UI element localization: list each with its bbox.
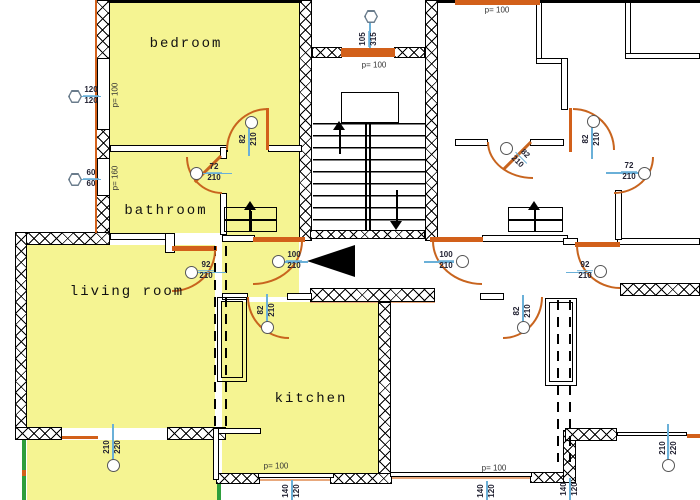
outline-box (224, 207, 277, 232)
wall-thin (110, 233, 168, 240)
dimension-text: 140 (282, 484, 291, 497)
wall-hatched (312, 47, 342, 58)
dimension-text: 120 (84, 86, 97, 95)
wall-hatched (15, 232, 110, 245)
window-hex-inner (70, 175, 81, 185)
dimension-circle (594, 265, 607, 278)
dimension-circle (185, 266, 198, 279)
dimension-circle (587, 115, 600, 128)
dimension-label: 6060 (83, 169, 99, 189)
dimension-circle (500, 142, 513, 155)
dimension-text: 210 (622, 173, 635, 182)
dimension-text: 100 (439, 251, 452, 260)
wall-hatched (96, 193, 110, 233)
dimension-label: 92210 (577, 261, 593, 281)
dimension-text: 210 (593, 132, 602, 145)
dimension-text: 210 (659, 441, 668, 454)
room-label-kitchen: kitchen (275, 391, 348, 407)
parapet-label: p= 100 (264, 462, 289, 471)
dimension-text: 120 (571, 482, 580, 495)
dashed-partition (569, 300, 571, 462)
wall-hatched (378, 302, 391, 474)
dimension-text: 140 (560, 482, 569, 495)
wall-thin (561, 58, 568, 110)
dimension-label: 140120 (560, 481, 580, 497)
wall-thin (617, 432, 687, 436)
wall-hatched (216, 473, 260, 484)
dimension-circle (662, 459, 675, 472)
window-marker (22, 470, 26, 476)
window-line (390, 477, 532, 479)
wall-thin (110, 145, 228, 152)
entry-steps-arrow-left (244, 201, 256, 210)
dimension-label: 210220 (659, 440, 679, 456)
wall-thin (268, 145, 302, 152)
dimension-text: 82 (257, 306, 266, 315)
wall-line (339, 130, 341, 154)
dimension-circle (456, 255, 469, 268)
dimension-text: 92 (581, 261, 590, 270)
dimension-text: 220 (114, 440, 123, 453)
window-marker (687, 434, 700, 438)
dimension-label: 92210 (198, 261, 214, 281)
wall-hatched (96, 125, 110, 161)
wall-thin (482, 235, 568, 242)
dimension-text: 120 (293, 484, 302, 497)
wall-hatched (310, 230, 425, 239)
dimension-label: 100210 (438, 251, 454, 271)
dimension-text: 82 (513, 307, 522, 316)
dimension-text: 210 (199, 272, 212, 281)
apartment-area (110, 3, 302, 148)
window-hex-inner (366, 12, 377, 22)
dimension-text: 220 (670, 441, 679, 454)
dimension-label: 120120 (83, 86, 99, 106)
wall-hatched (15, 232, 27, 440)
dimension-circle (517, 321, 530, 334)
dashed-partition (214, 246, 216, 430)
dimension-text: 72 (625, 162, 634, 171)
dimension-circle (107, 459, 120, 472)
wall-thin (222, 235, 255, 242)
wall-line (369, 123, 371, 230)
dimension-label: 82210 (257, 302, 277, 318)
wall-thin (480, 293, 504, 300)
dimension-text: 210 (439, 262, 452, 271)
window-marker (341, 48, 395, 57)
dimension-label: 140120 (477, 483, 497, 499)
dimension-label: 82210 (513, 303, 533, 319)
room-label-living-room: living room (70, 284, 184, 300)
wall-thin (625, 53, 700, 59)
wall-thin (258, 473, 334, 478)
wall-hatched (330, 473, 392, 484)
dimension-label: 72210 (621, 162, 637, 182)
stairs-down-arrow (390, 221, 402, 230)
dimension-label: 105315 (359, 31, 379, 47)
wall-line (110, 0, 302, 3)
dimension-text: 210 (578, 272, 591, 281)
wall-thin (625, 0, 631, 58)
dimension-text: 210 (524, 304, 533, 317)
wall-hatched (15, 427, 62, 440)
window-marker (95, 0, 97, 233)
dashed-partition (557, 300, 559, 462)
entry-steps-arrow-right (528, 201, 540, 210)
wall-line (365, 123, 367, 230)
dimension-text: 60 (87, 180, 96, 189)
wall-thin (213, 428, 219, 480)
dimension-text: 92 (202, 261, 211, 270)
outline-box (341, 92, 399, 123)
parapet-label: p= 100 (482, 464, 507, 473)
dimension-circle (638, 167, 651, 180)
wall-thin (615, 190, 622, 240)
room-label-bedroom: bedroom (150, 36, 223, 52)
dimension-circle (245, 116, 258, 129)
wall-thin (390, 472, 532, 477)
dimension-text: 210 (207, 174, 220, 183)
dimension-label: 82210 (582, 131, 602, 147)
window-hex-icon (68, 173, 82, 186)
wall-hatched (394, 47, 425, 58)
dimension-text: 210 (250, 132, 259, 145)
wall-line (396, 190, 398, 223)
dimension-text: 100 (287, 251, 300, 260)
wall-hatched (425, 0, 438, 241)
parapet-label: p= 100 (111, 83, 120, 108)
dimension-label: 100210 (286, 251, 302, 271)
dimension-text: 120 (488, 484, 497, 497)
outline-box (508, 207, 563, 232)
wall-hatched (96, 0, 110, 60)
wall-thin (287, 293, 312, 300)
dashed-partition (225, 246, 227, 430)
room-label-bathroom: bathroom (124, 203, 207, 219)
dimension-text: 105 (359, 32, 368, 45)
wall-hatched (620, 283, 700, 296)
wall-thin (617, 238, 700, 245)
parapet-label: p= 100 (485, 6, 510, 15)
dimension-text: 210 (268, 303, 277, 316)
parapet-label: p= 160 (111, 166, 120, 191)
wall-hatched (310, 288, 435, 302)
dimension-circle (272, 255, 285, 268)
dimension-text: 210 (287, 262, 300, 271)
dimension-text: 72 (210, 163, 219, 172)
wall-thin (536, 0, 542, 63)
dimension-circle (261, 321, 274, 334)
wall-hatched (565, 428, 617, 441)
window-hex-inner (70, 92, 81, 102)
wall-thin (455, 139, 488, 146)
dimension-text: 120 (84, 97, 97, 106)
stairs-up-arrow (333, 121, 345, 130)
window-hex-icon (364, 10, 378, 23)
window-marker (569, 108, 572, 152)
wall-thin (213, 428, 261, 434)
dimension-label: 72210 (206, 163, 222, 183)
window-marker (455, 0, 540, 5)
floor-plan: S5 8221072210922101002108221021022014012… (0, 0, 700, 500)
dimension-text: 82 (239, 135, 248, 144)
window-marker (62, 436, 98, 439)
dimension-text: 210 (103, 440, 112, 453)
dimension-circle (190, 167, 203, 180)
dimension-label: 210220 (103, 439, 123, 455)
dimension-text: 315 (370, 32, 379, 45)
wall-thin (530, 139, 564, 146)
wall-hatched (299, 0, 312, 241)
dimension-text: 60 (87, 169, 96, 178)
dimension-text: 82 (582, 135, 591, 144)
dimension-text: 140 (477, 484, 486, 497)
entrance-arrow (307, 245, 355, 277)
dimension-label: 140120 (282, 483, 302, 499)
parapet-label: p= 100 (362, 61, 387, 70)
window-line (258, 479, 334, 481)
dimension-label: 82210 (239, 131, 259, 147)
window-hex-icon (68, 90, 82, 103)
